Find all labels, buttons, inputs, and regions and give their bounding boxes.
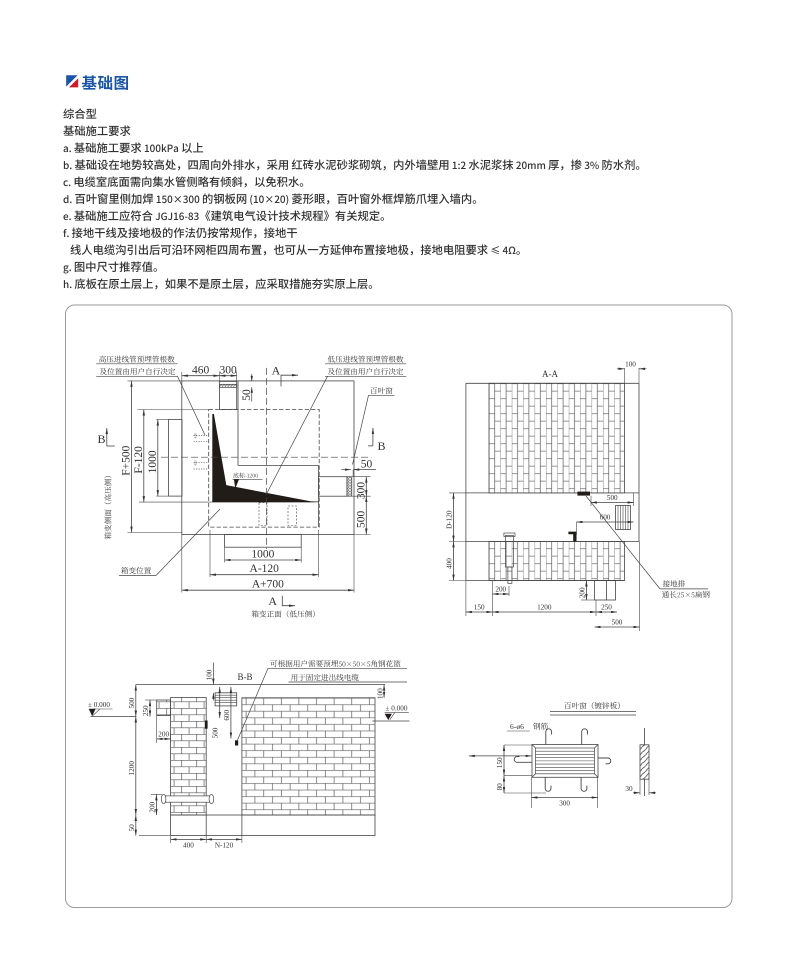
svg-text:B: B <box>97 432 105 446</box>
svg-text:A-120: A-120 <box>250 563 280 575</box>
svg-text:500: 500 <box>356 511 368 529</box>
svg-text:D-120: D-120 <box>446 510 454 529</box>
svg-text:400: 400 <box>446 558 454 569</box>
svg-text:300: 300 <box>356 482 368 500</box>
svg-text:500: 500 <box>128 697 136 708</box>
svg-text:A: A <box>268 594 277 608</box>
svg-text:F-120: F-120 <box>133 446 145 474</box>
svg-text:300: 300 <box>559 800 570 808</box>
svg-text:1200: 1200 <box>537 604 552 612</box>
svg-text:1000: 1000 <box>147 450 159 473</box>
svg-text:50: 50 <box>128 824 136 832</box>
svg-text:6-ø6: 6-ø6 <box>510 722 524 731</box>
svg-text:600: 600 <box>223 709 231 720</box>
svg-text:500: 500 <box>612 619 623 627</box>
svg-text:200: 200 <box>149 801 157 812</box>
svg-text:N-120: N-120 <box>215 841 234 849</box>
svg-text:100: 100 <box>206 669 214 680</box>
svg-text:50: 50 <box>241 389 253 401</box>
svg-text:460: 460 <box>192 365 210 377</box>
svg-text:50: 50 <box>361 459 373 471</box>
svg-text:1000: 1000 <box>251 549 274 561</box>
svg-text:B: B <box>377 439 385 453</box>
svg-text:F+500: F+500 <box>121 445 133 475</box>
svg-text:± 0.000: ± 0.000 <box>88 701 110 709</box>
svg-text:200: 200 <box>495 586 506 594</box>
svg-text:± 0.000: ± 0.000 <box>386 705 408 713</box>
svg-text:250: 250 <box>601 604 612 612</box>
svg-text:500: 500 <box>212 727 220 738</box>
svg-text:500: 500 <box>607 494 618 502</box>
svg-text:100: 100 <box>625 360 636 368</box>
svg-text:150: 150 <box>474 604 485 612</box>
svg-text:80: 80 <box>496 783 504 791</box>
svg-text:B-B: B-B <box>237 672 252 682</box>
svg-text:600: 600 <box>600 514 611 522</box>
svg-text:200: 200 <box>158 730 169 738</box>
svg-text:250: 250 <box>142 705 150 716</box>
svg-text:1200: 1200 <box>128 761 136 776</box>
svg-text:A-A: A-A <box>542 369 558 379</box>
svg-text:150: 150 <box>496 757 504 768</box>
svg-text:200: 200 <box>579 587 587 598</box>
svg-text:100: 100 <box>376 688 384 699</box>
svg-text:400: 400 <box>183 841 194 849</box>
svg-text:30: 30 <box>625 785 633 793</box>
svg-text:300: 300 <box>219 365 237 377</box>
svg-text:A: A <box>272 363 281 377</box>
svg-text:A+700: A+700 <box>252 579 284 591</box>
